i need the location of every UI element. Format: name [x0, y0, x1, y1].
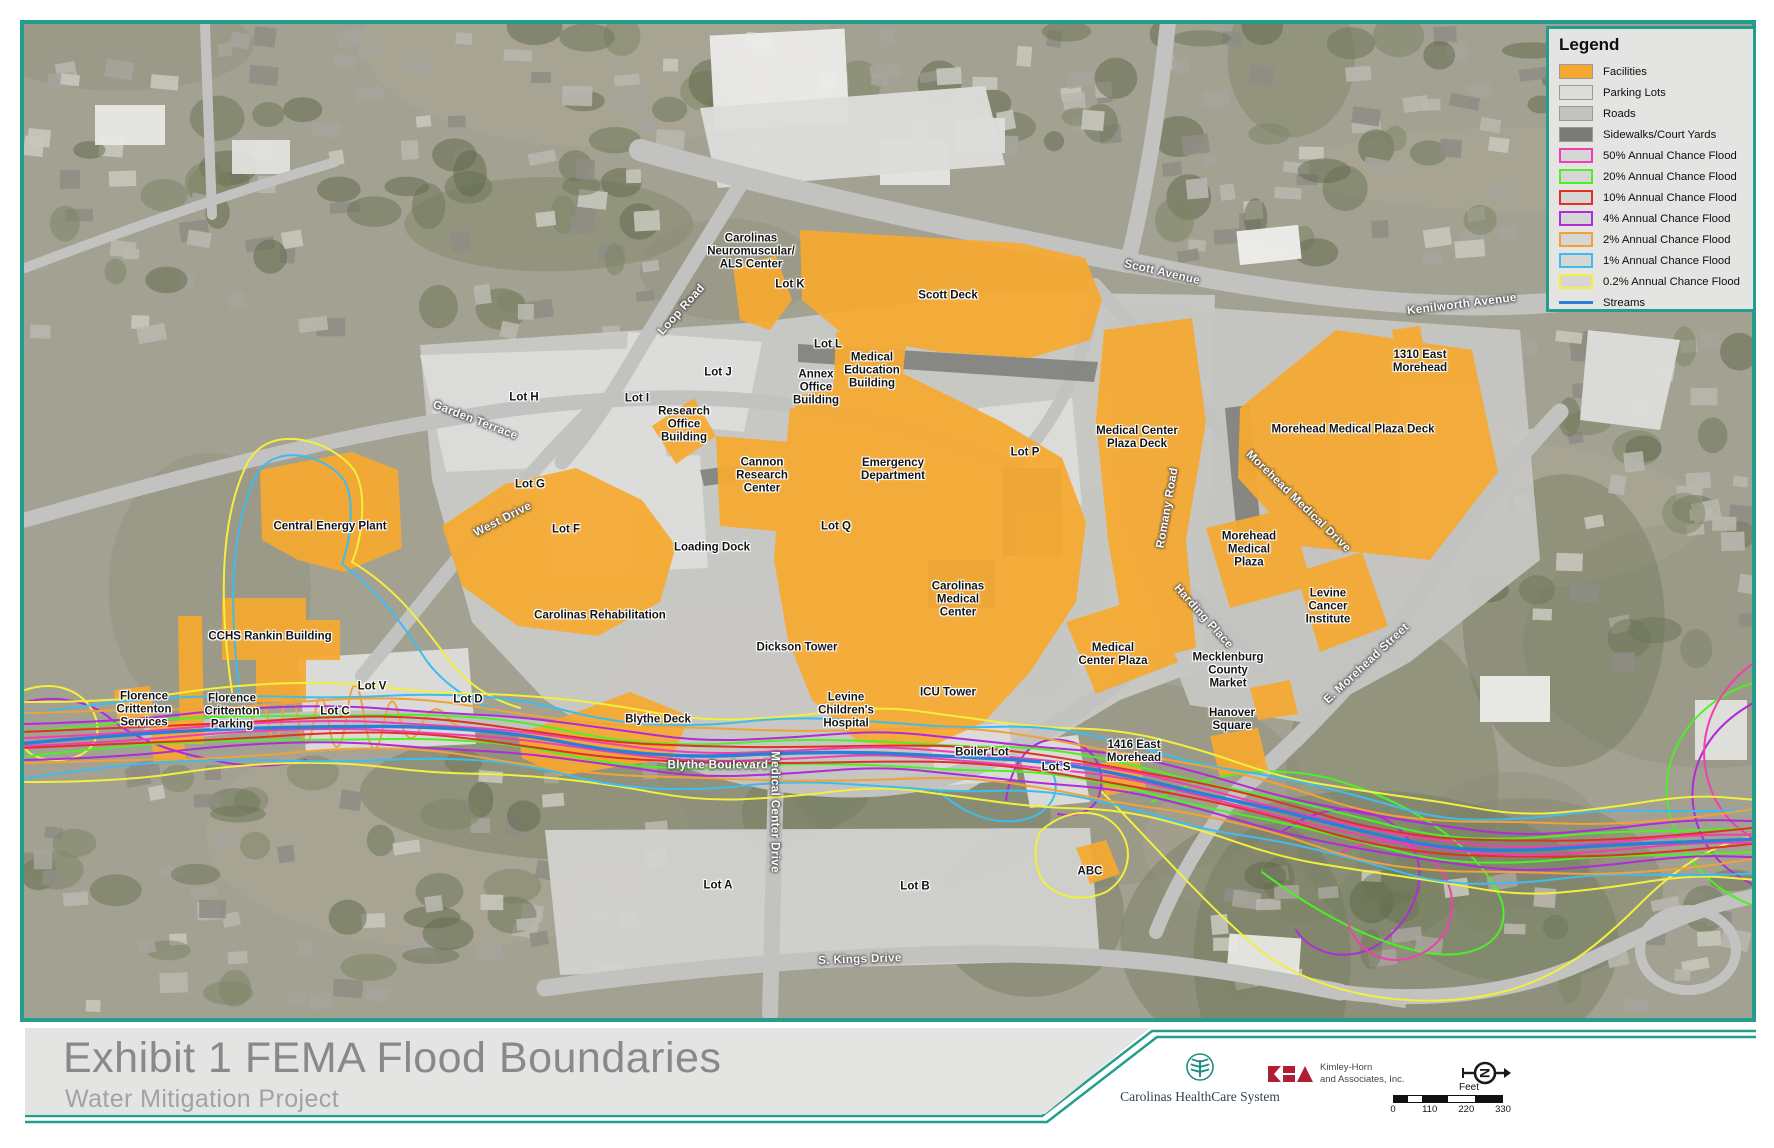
legend-item-label: 20% Annual Chance Flood — [1603, 171, 1737, 183]
map-exhibit-page: Carolinas Neuromuscular/ ALS CenterLot K… — [0, 0, 1774, 1148]
legend-item-label: 50% Annual Chance Flood — [1603, 150, 1737, 162]
map-canvas — [0, 0, 1774, 1148]
facility-swatch — [1559, 64, 1593, 79]
kimley-horn-logo: Kimley-Horn and Associates, Inc. — [1268, 1062, 1405, 1086]
flood50-swatch — [1559, 148, 1593, 163]
scale-tick-220: 220 — [1458, 1104, 1474, 1115]
scale-tick-330: 330 — [1495, 1104, 1511, 1115]
legend-item-sidewalks-court-yards: Sidewalks/Court Yards — [1559, 124, 1745, 145]
legend-item-20-annual-chance-flood: 20% Annual Chance Flood — [1559, 166, 1745, 187]
legend: Legend FacilitiesParking LotsRoadsSidewa… — [1546, 26, 1756, 312]
legend-item-parking-lots: Parking Lots — [1559, 82, 1745, 103]
flood4-swatch — [1559, 211, 1593, 226]
legend-item-1-annual-chance-flood: 1% Annual Chance Flood — [1559, 250, 1745, 271]
legend-item-4-annual-chance-flood: 4% Annual Chance Flood — [1559, 208, 1745, 229]
flood02-swatch — [1559, 274, 1593, 289]
legend-title: Legend — [1559, 35, 1745, 55]
scale-ticks: 0110220330 — [1393, 1104, 1503, 1116]
legend-item-50-annual-chance-flood: 50% Annual Chance Flood — [1559, 145, 1745, 166]
scale-tick-110: 110 — [1422, 1104, 1437, 1115]
parking-swatch — [1559, 85, 1593, 100]
legend-item-facilities: Facilities — [1559, 61, 1745, 82]
flood20-swatch — [1559, 169, 1593, 184]
legend-item-streams: Streams — [1559, 292, 1745, 313]
legend-item-10-annual-chance-flood: 10% Annual Chance Flood — [1559, 187, 1745, 208]
legend-item-2-annual-chance-flood: 2% Annual Chance Flood — [1559, 229, 1745, 250]
scale-strip — [1393, 1095, 1503, 1103]
legend-item-label: Facilities — [1603, 66, 1647, 78]
legend-item-label: Roads — [1603, 108, 1636, 120]
kimley-horn-label: Kimley-Horn and Associates, Inc. — [1320, 1062, 1405, 1086]
legend-item-0-2-annual-chance-flood: 0.2% Annual Chance Flood — [1559, 271, 1745, 292]
title-bar: Exhibit 1 FEMA Flood Boundaries Water Mi… — [25, 1028, 1150, 1114]
legend-items: FacilitiesParking LotsRoadsSidewalks/Cou… — [1559, 61, 1745, 313]
map-graphics — [0, 0, 1774, 1094]
legend-item-label: Parking Lots — [1603, 87, 1666, 99]
legend-item-label: 1% Annual Chance Flood — [1603, 255, 1731, 267]
carolinas-healthcare-logo: Carolinas HealthCare System — [1120, 1052, 1280, 1105]
road-swatch — [1559, 106, 1593, 121]
legend-item-label: 0.2% Annual Chance Flood — [1603, 276, 1740, 288]
legend-item-label: Sidewalks/Court Yards — [1603, 129, 1716, 141]
legend-item-label: Streams — [1603, 297, 1645, 309]
page-subtitle: Water Mitigation Project — [65, 1085, 1150, 1114]
north-arrow-icon: N — [1460, 1058, 1512, 1093]
kimley-horn-icon — [1268, 1065, 1314, 1083]
sidewalk-swatch — [1559, 127, 1593, 142]
carolinas-healthcare-label: Carolinas HealthCare System — [1120, 1089, 1280, 1105]
page-title: Exhibit 1 FEMA Flood Boundaries — [63, 1034, 1150, 1083]
scale-tick-0: 0 — [1390, 1104, 1395, 1115]
legend-item-label: 10% Annual Chance Flood — [1603, 192, 1737, 204]
svg-text:N: N — [1477, 1068, 1493, 1078]
flood1-swatch — [1559, 253, 1593, 268]
tree-icon — [1185, 1052, 1215, 1082]
flood2-swatch — [1559, 232, 1593, 247]
stream-swatch — [1559, 295, 1593, 310]
legend-item-label: 2% Annual Chance Flood — [1603, 234, 1731, 246]
facility-1310-morehead — [1392, 326, 1424, 354]
flood10-swatch — [1559, 190, 1593, 205]
kimley-horn-line1: Kimley-Horn — [1320, 1062, 1405, 1074]
legend-item-roads: Roads — [1559, 103, 1745, 124]
legend-item-label: 4% Annual Chance Flood — [1603, 213, 1731, 225]
kimley-horn-line2: and Associates, Inc. — [1320, 1074, 1405, 1086]
